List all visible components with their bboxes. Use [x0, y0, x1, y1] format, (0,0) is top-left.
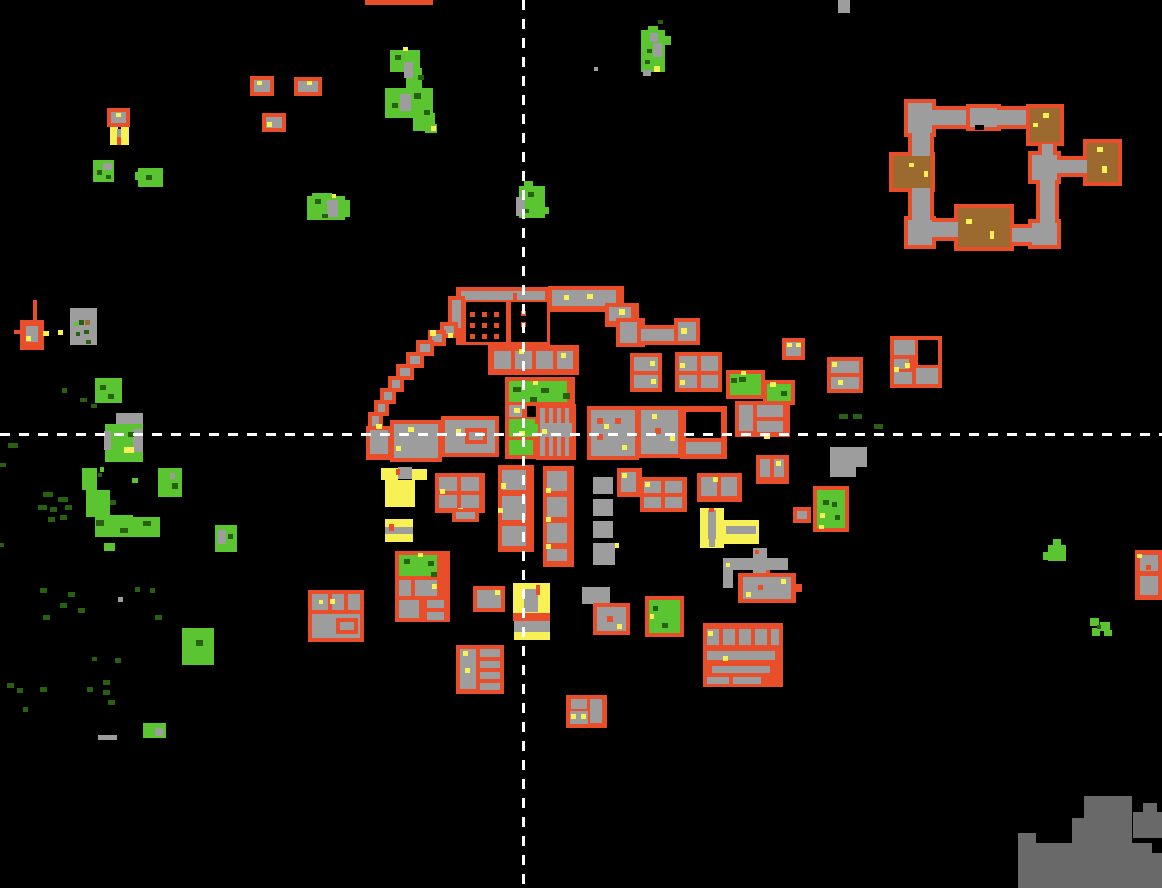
loot-marker	[332, 194, 336, 198]
pavement-floor	[439, 495, 457, 508]
pavement-floor	[908, 103, 932, 133]
loot-marker	[832, 362, 837, 367]
vegetation-dark	[84, 330, 89, 334]
building-wall	[494, 323, 499, 328]
loot-marker	[501, 483, 506, 489]
rock-rubble	[1084, 796, 1132, 843]
loot-marker	[622, 473, 627, 478]
loot-marker	[723, 656, 728, 661]
overmap-canvas[interactable]	[0, 0, 1162, 888]
pavement-floor	[547, 549, 567, 561]
pavement-floor	[384, 392, 392, 400]
vegetation	[345, 205, 350, 217]
vegetation-dark	[1097, 625, 1101, 629]
building-wall	[545, 437, 549, 456]
loot-marker	[619, 309, 625, 315]
wood-room	[958, 208, 1010, 247]
vegetation-dark	[108, 394, 114, 399]
loot-marker	[408, 427, 414, 432]
loot-marker	[820, 513, 825, 518]
crosshair-horizontal-line	[0, 433, 1162, 436]
building-wall	[553, 437, 557, 456]
rock-rubble	[1133, 812, 1162, 838]
pavement-floor	[593, 543, 615, 565]
pavement-floor	[594, 67, 598, 71]
loot-marker	[564, 295, 569, 300]
pavement-floor	[480, 672, 500, 679]
pavement-floor	[1012, 228, 1032, 242]
building-wall	[482, 312, 487, 317]
building-wall	[482, 323, 487, 328]
building-wall	[312, 610, 360, 614]
pavement-floor	[547, 523, 567, 543]
loot-marker	[430, 330, 436, 336]
loot-marker	[385, 534, 413, 542]
rock-rubble	[1072, 818, 1086, 844]
loot-marker	[894, 367, 899, 372]
loot-marker	[456, 429, 461, 434]
loot-marker	[787, 343, 792, 347]
loot-marker	[700, 539, 709, 547]
pavement-floor	[686, 442, 721, 454]
loot-marker	[519, 349, 524, 354]
loot-marker	[1097, 147, 1103, 152]
pavement-floor	[427, 600, 444, 608]
pavement-floor	[394, 424, 438, 458]
vegetation	[543, 207, 549, 214]
pavement-floor	[104, 431, 111, 450]
loot-marker	[622, 445, 627, 450]
vegetation-dark	[58, 497, 68, 502]
loot-marker	[116, 113, 121, 117]
pavement-floor	[712, 666, 770, 673]
pavement-floor	[650, 33, 658, 42]
vegetation-dark	[395, 55, 401, 60]
vegetation-dark	[40, 687, 47, 692]
vegetation	[1104, 630, 1112, 636]
building-wall	[494, 312, 499, 317]
vegetation-dark	[196, 640, 203, 646]
pavement-floor	[461, 477, 479, 491]
vegetation-dark	[523, 209, 529, 213]
building-wall	[482, 334, 487, 339]
vegetation-dark	[23, 707, 28, 712]
pavement-floor	[427, 612, 444, 620]
vegetation-dark	[874, 424, 883, 429]
building-wall	[33, 300, 37, 322]
pavement-floor	[170, 473, 175, 479]
vegetation	[100, 467, 104, 472]
vegetation-dark	[146, 175, 152, 180]
unexplored-interior	[975, 125, 984, 130]
vegetation-dark	[86, 340, 91, 344]
building-wall	[758, 585, 763, 590]
pavement-floor	[370, 430, 388, 454]
pavement-floor	[461, 495, 479, 508]
loot-marker	[519, 431, 525, 436]
pavement-floor	[420, 344, 430, 352]
loot-marker	[776, 461, 781, 466]
vegetation-dark	[91, 404, 97, 408]
pavement-floor	[665, 481, 682, 493]
pavement-floor	[739, 629, 751, 645]
pavement-floor	[932, 110, 966, 125]
pavement-floor	[757, 405, 783, 417]
pavement-floor	[838, 0, 850, 13]
pavement-floor	[404, 62, 413, 78]
vegetation-dark	[155, 615, 162, 620]
building-wall	[569, 408, 572, 423]
pavement-floor	[726, 526, 756, 534]
loot-marker	[966, 219, 972, 224]
pavement-floor	[536, 351, 553, 369]
loot-marker	[514, 632, 550, 640]
vegetation-dark	[79, 320, 84, 325]
pavement-floor	[1032, 223, 1057, 245]
pavement-floor	[582, 587, 610, 604]
loot-marker	[432, 584, 437, 589]
wood-room	[85, 320, 90, 325]
pavement-floor	[771, 629, 779, 645]
pavement-floor	[400, 94, 411, 111]
pavement-floor	[469, 432, 483, 440]
vegetation-dark	[645, 60, 650, 64]
rock-rubble	[1143, 803, 1157, 815]
vegetation-dark	[108, 700, 115, 705]
loot-marker	[533, 381, 538, 385]
pavement-floor	[831, 377, 859, 389]
loot-marker	[498, 508, 503, 513]
vegetation-dark	[7, 683, 14, 688]
loot-marker	[713, 477, 718, 482]
pavement-floor	[894, 340, 915, 355]
pavement-floor	[665, 497, 682, 508]
loot-marker	[581, 714, 586, 719]
pavement-floor	[830, 447, 867, 467]
pavement-floor	[502, 496, 526, 520]
pavement-floor	[701, 375, 718, 388]
loot-marker	[990, 231, 994, 239]
pavement-floor	[502, 526, 526, 546]
building-wall	[545, 408, 549, 423]
pavement-floor	[98, 735, 117, 740]
pavement-floor	[760, 459, 770, 477]
vegetation-dark	[78, 608, 85, 613]
pavement-floor	[830, 467, 856, 477]
pavement-floor	[155, 728, 163, 736]
pavement-floor	[908, 220, 932, 245]
vegetation-dark	[392, 103, 398, 108]
loot-marker	[650, 614, 654, 619]
pavement-floor	[400, 368, 410, 376]
loot-marker	[257, 81, 262, 85]
vegetation-dark	[662, 623, 668, 628]
loot-marker	[796, 343, 801, 347]
loot-marker	[924, 171, 928, 177]
loot-marker	[715, 539, 723, 547]
loot-marker	[440, 489, 445, 494]
building-wall	[389, 524, 394, 531]
vegetation-dark	[781, 391, 787, 396]
vegetation-dark	[68, 592, 75, 597]
pavement-floor	[571, 699, 587, 709]
building-wall	[513, 293, 517, 300]
loot-marker	[587, 294, 593, 299]
vegetation-dark	[150, 588, 155, 593]
loot-marker	[838, 380, 843, 385]
vegetation-dark	[414, 93, 421, 99]
building-wall	[117, 137, 121, 145]
vegetation	[133, 517, 160, 537]
vegetation-dark	[839, 414, 848, 419]
vegetation-dark	[110, 500, 116, 505]
vegetation	[95, 378, 122, 403]
vegetation-dark	[8, 443, 18, 448]
loot-marker	[909, 163, 914, 167]
building-wall	[561, 437, 565, 456]
pavement-floor	[644, 497, 661, 508]
pavement-floor	[461, 291, 545, 300]
loot-marker	[546, 517, 551, 522]
building-wall	[513, 613, 550, 621]
vegetation-dark	[528, 192, 534, 197]
building-wall	[1146, 565, 1151, 570]
building-wall	[561, 408, 565, 423]
loot-marker	[617, 624, 622, 629]
pavement-floor	[70, 308, 97, 345]
vegetation-dark	[172, 483, 178, 489]
vegetation-dark	[103, 690, 110, 695]
vegetation-dark	[60, 603, 67, 608]
loot-marker	[43, 331, 49, 336]
vegetation-dark	[228, 534, 233, 539]
pavement-floor	[117, 129, 121, 137]
vegetation-dark	[92, 657, 97, 661]
vegetation-dark	[418, 75, 424, 80]
vegetation	[664, 36, 671, 45]
building-wall	[655, 428, 661, 434]
loot-marker	[403, 47, 408, 51]
vegetation-dark	[135, 587, 140, 592]
vegetation-dark	[48, 517, 55, 522]
loot-marker	[431, 126, 436, 131]
pavement-floor	[721, 477, 737, 496]
vegetation-dark	[60, 515, 67, 520]
vegetation	[95, 515, 133, 537]
building-wall	[470, 323, 475, 328]
building-wall	[709, 508, 714, 512]
vegetation-dark	[120, 528, 128, 533]
pavement-floor	[593, 499, 613, 516]
vegetation-dark	[513, 387, 521, 392]
vegetation	[509, 440, 533, 455]
vegetation	[82, 468, 97, 490]
building-wall	[470, 312, 475, 317]
building-wall	[569, 437, 572, 456]
loot-marker	[741, 371, 746, 375]
loot-marker	[330, 599, 335, 604]
unexplored-interior	[918, 340, 938, 365]
building-wall	[615, 418, 621, 424]
vegetation-dark	[322, 214, 328, 218]
vegetation-dark	[96, 520, 104, 526]
loot-marker	[652, 414, 657, 419]
pavement-floor	[514, 621, 550, 632]
loot-marker	[267, 122, 272, 127]
pavement-floor	[340, 622, 354, 630]
building-wall	[597, 418, 603, 424]
loot-marker	[319, 600, 323, 604]
pavement-floor	[739, 405, 753, 431]
pavement-floor	[620, 322, 637, 343]
pavement-floor	[1040, 180, 1055, 224]
pavement-floor	[398, 467, 412, 479]
pavement-floor	[723, 558, 788, 570]
pavement-floor	[643, 70, 651, 76]
loot-marker	[746, 592, 751, 597]
pavement-floor	[327, 200, 338, 217]
building-wall	[553, 408, 557, 423]
vegetation-dark	[404, 559, 410, 564]
loot-marker	[124, 447, 134, 453]
vegetation-dark	[653, 606, 658, 611]
vegetation-dark	[106, 175, 111, 179]
vegetation-dark	[62, 388, 67, 393]
loot-marker	[385, 480, 415, 507]
loot-marker	[764, 434, 770, 439]
loot-marker	[542, 429, 547, 434]
pavement-floor	[399, 600, 419, 618]
vegetation	[1048, 545, 1066, 561]
loot-marker	[681, 328, 687, 334]
vegetation-dark	[853, 414, 862, 419]
vegetation	[86, 490, 110, 517]
loot-marker	[680, 380, 685, 385]
loot-marker	[708, 631, 713, 636]
pavement-floor	[480, 683, 500, 690]
loot-marker	[1102, 166, 1107, 173]
pavement-floor	[1140, 576, 1158, 595]
vegetation-dark	[17, 688, 23, 693]
vegetation-dark	[143, 521, 151, 526]
vegetation-dark	[823, 500, 829, 505]
pavement-floor	[547, 497, 567, 517]
pavement-floor	[723, 629, 735, 645]
loot-marker	[651, 379, 656, 384]
vegetation	[529, 424, 538, 437]
unexplored-interior	[511, 302, 547, 342]
loot-marker	[645, 482, 650, 487]
loot-marker	[121, 127, 129, 145]
building-wall	[344, 594, 348, 610]
pavement-floor	[797, 511, 807, 519]
loot-marker	[448, 333, 453, 338]
vegetation-dark	[424, 110, 430, 115]
vegetation-dark	[0, 463, 6, 467]
loot-marker	[514, 408, 520, 413]
pavement-floor	[456, 512, 475, 519]
pavement-floor	[997, 110, 1026, 125]
loot-marker	[307, 81, 312, 85]
vegetation-dark	[80, 398, 87, 402]
building-wall	[521, 311, 526, 316]
building-wall	[755, 550, 759, 554]
vegetation-dark	[563, 393, 570, 399]
pavement-floor	[733, 677, 761, 684]
vegetation	[648, 26, 658, 32]
loot-marker	[905, 363, 910, 368]
pavement-floor	[590, 699, 602, 723]
vegetation-dark	[40, 588, 47, 593]
vegetation	[1043, 552, 1049, 560]
rock-rubble	[1152, 853, 1162, 888]
vegetation	[1053, 539, 1061, 547]
building-wall	[597, 434, 603, 440]
vegetation-dark	[739, 377, 746, 382]
pavement-floor	[392, 380, 400, 388]
building-wall	[794, 584, 802, 592]
vegetation	[74, 322, 78, 326]
vegetation-dark	[65, 505, 72, 510]
vegetation-dark	[87, 687, 93, 692]
pavement-floor	[410, 356, 420, 364]
rock-rubble	[1018, 833, 1036, 843]
pavement-floor	[133, 429, 143, 452]
loot-marker	[615, 543, 619, 548]
vegetation-dark	[43, 615, 50, 620]
pavement-floor	[494, 351, 511, 369]
loot-marker	[670, 436, 675, 441]
loot-marker	[495, 590, 500, 595]
loot-marker	[1043, 113, 1049, 118]
loot-marker	[418, 553, 423, 557]
building-wall	[396, 469, 400, 475]
building-wall	[607, 616, 613, 622]
pavement-floor	[641, 329, 678, 341]
pavement-floor	[103, 163, 112, 170]
loot-marker	[1033, 123, 1038, 127]
pavement-floor	[757, 421, 783, 432]
rock-rubble	[1018, 843, 1152, 888]
vegetation-dark	[647, 49, 652, 53]
loot-marker	[58, 330, 63, 335]
loot-marker	[463, 651, 468, 656]
pavement-floor	[894, 372, 912, 384]
pavement-floor	[707, 651, 775, 660]
pavement-floor	[118, 597, 123, 602]
pavement-floor	[480, 661, 500, 668]
vegetation-dark	[115, 658, 121, 663]
pavement-floor	[591, 410, 635, 456]
vegetation-dark	[50, 507, 57, 512]
vegetation-dark	[128, 432, 134, 437]
loot-marker	[654, 66, 660, 72]
pavement-floor	[399, 580, 411, 596]
vegetation	[104, 543, 115, 551]
loot-marker	[412, 469, 427, 480]
loot-marker	[396, 446, 401, 451]
vegetation-dark	[428, 561, 434, 566]
building-wall	[536, 585, 540, 595]
loot-marker	[680, 363, 685, 368]
building-wall	[365, 0, 433, 5]
loot-marker	[770, 382, 776, 387]
pavement-floor	[1057, 160, 1087, 173]
vegetation	[1092, 628, 1100, 636]
pavement-floor	[701, 356, 718, 371]
loot-marker	[561, 353, 566, 358]
loot-marker	[781, 579, 786, 584]
